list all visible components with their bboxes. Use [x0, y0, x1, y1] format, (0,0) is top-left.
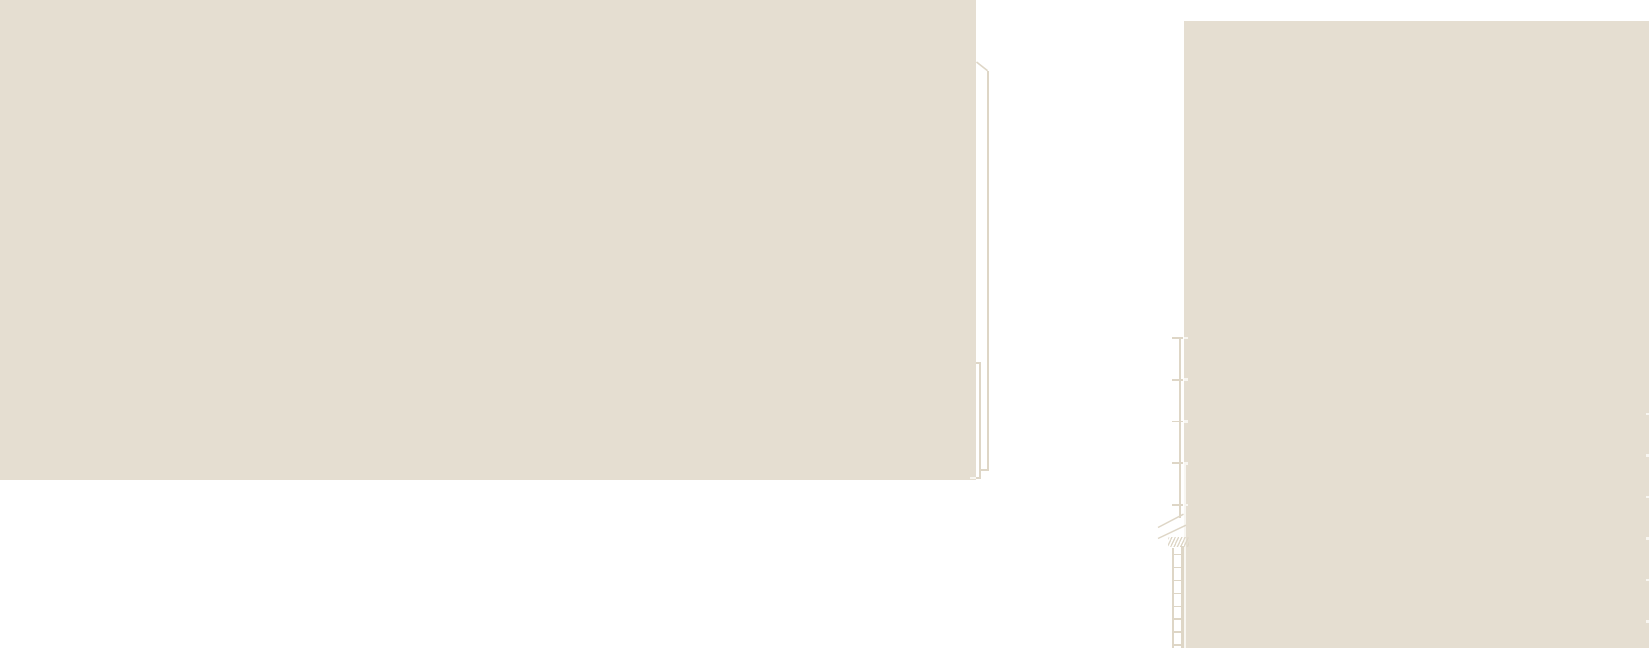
edge-notch: [1184, 420, 1188, 422]
ladder-rail-left: [1172, 548, 1174, 648]
ruler-line: [1179, 337, 1181, 518]
right-paper-mass: [1184, 21, 1649, 648]
edge-notch: [1184, 337, 1188, 339]
ladder-rung: [1172, 631, 1184, 633]
corner-diagonal-line: [977, 62, 988, 71]
ruler-tick: [1172, 379, 1184, 381]
ladder-rung: [1172, 644, 1184, 646]
break-line-scribble: [1168, 537, 1189, 548]
ruler-tick: [1172, 337, 1184, 339]
right-mass-face-seam: [1184, 463, 1186, 648]
ruler-tick: [1172, 421, 1184, 423]
left-mass-outer-edge-line: [987, 71, 989, 472]
left-mass-inner-edge-cap: [976, 362, 981, 364]
ladder-rung: [1172, 567, 1184, 569]
ladder-rung: [1172, 606, 1184, 608]
left-mass-inner-edge-line: [979, 362, 981, 479]
left-mass-outer-edge-foot: [980, 469, 988, 471]
ladder-rung: [1172, 618, 1184, 620]
ladder-rung: [1172, 580, 1184, 582]
left-paper-mass: [0, 0, 976, 480]
drawing-canvas: [0, 0, 1649, 648]
left-mass-foot-notch: [970, 477, 977, 479]
ruler-tick: [1172, 504, 1184, 506]
left-mass-inner-edge-foot: [976, 477, 981, 479]
edge-notch: [1184, 378, 1188, 380]
ladder-rung: [1172, 554, 1184, 556]
ladder-rung: [1172, 593, 1184, 595]
ruler-tick: [1172, 462, 1184, 464]
